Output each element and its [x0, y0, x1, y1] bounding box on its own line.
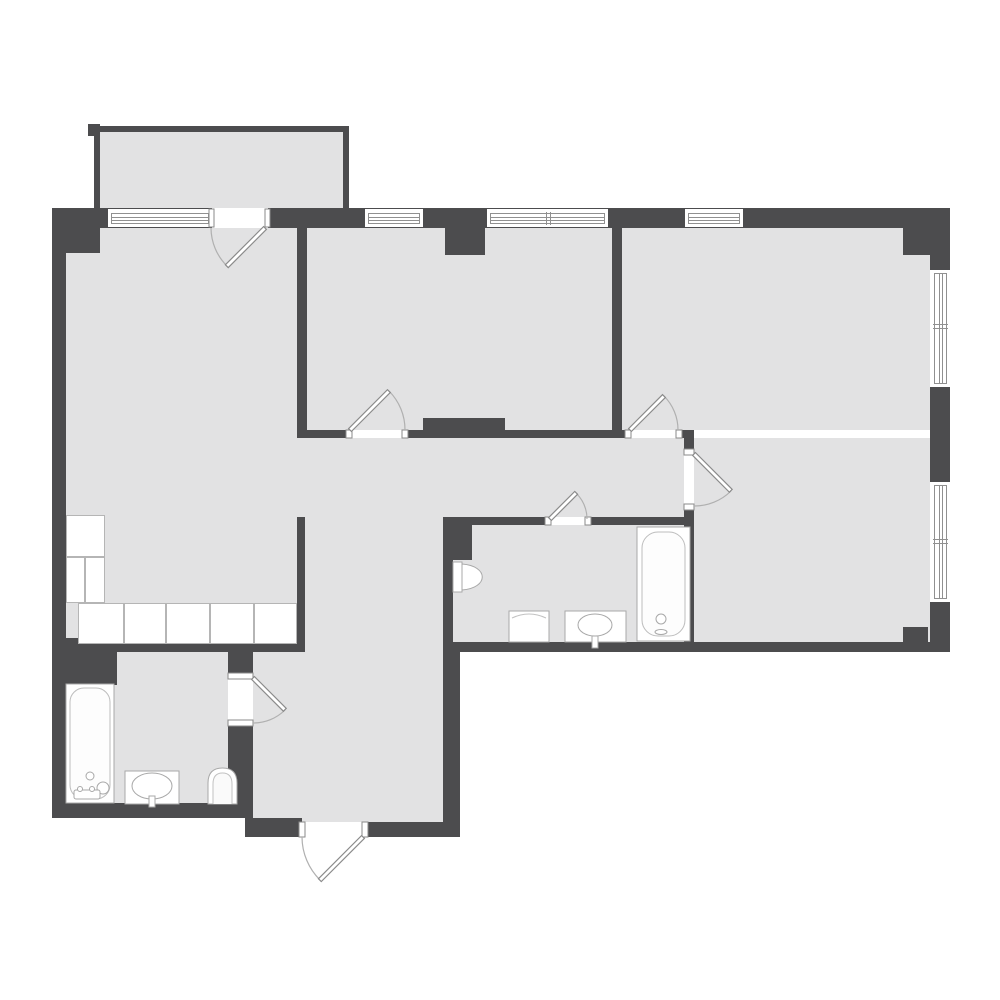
balcony-door-leaf: [225, 227, 266, 268]
bathroom-bottom-left-door-leaf: [252, 677, 287, 712]
toilet-tank: [453, 562, 462, 592]
bathroom-bottom-left-door-arc: [253, 710, 285, 723]
bathtub-drain: [655, 630, 667, 635]
bathroom-middle-door-leaf: [549, 491, 578, 520]
bedroom-top-right-door-arc: [664, 396, 678, 430]
bathtub-faucet-knob: [90, 787, 95, 792]
bedroom-top-middle-door-leaf: [349, 390, 391, 432]
sink-basin: [578, 614, 612, 636]
toilet-bowl: [462, 564, 482, 590]
bedroom-top-right-door-leaf: [629, 395, 666, 432]
door-jambs: [209, 209, 694, 837]
sink-basin: [132, 773, 172, 799]
sink-faucet: [149, 796, 155, 807]
entrance-door-arc: [302, 837, 320, 880]
bathroom-middle-fixtures: [453, 527, 690, 648]
balcony-door-arc: [211, 228, 227, 266]
doors-and-fixtures-layer: [0, 0, 1000, 1000]
washing-machine: [509, 611, 549, 642]
bedroom-top-middle-door-arc: [389, 391, 405, 430]
entrance-door-leaf: [318, 836, 364, 882]
bathroom-bottom-left-fixtures: [66, 684, 237, 807]
sink-faucet: [592, 636, 598, 648]
bathtub-overflow: [86, 772, 94, 780]
bedroom-bottom-right-door-leaf: [693, 453, 733, 493]
floor-plan: [0, 0, 1000, 1000]
bedroom-bottom-right-door-arc: [694, 491, 731, 506]
bathroom-middle-door-arc: [576, 493, 587, 519]
toilet-inner: [213, 773, 232, 804]
bathtub-faucet-knob: [78, 787, 83, 792]
bathtub-faucet-bar: [74, 790, 100, 799]
bathtub-overflow: [656, 614, 666, 624]
